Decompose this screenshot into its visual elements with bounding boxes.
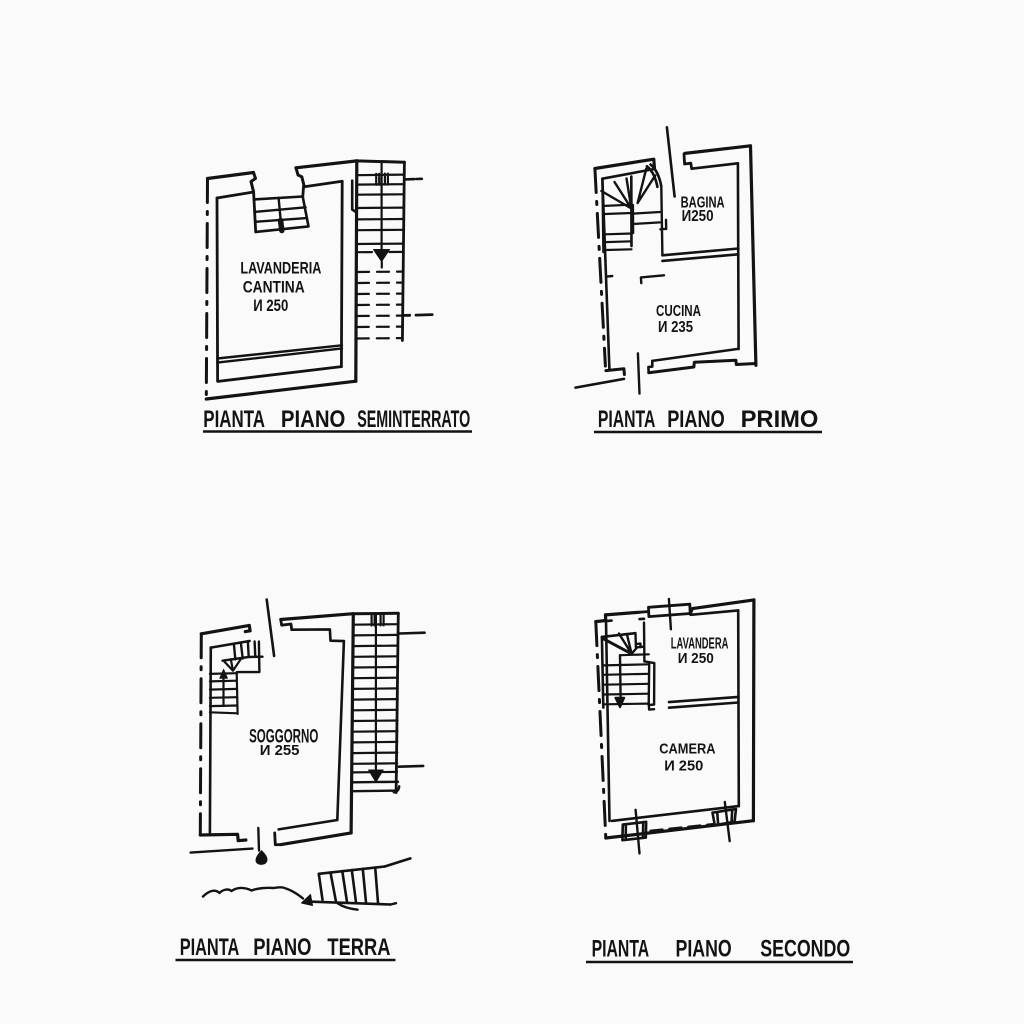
svg-text:PRIMO: PRIMO [741,406,819,433]
svg-text:CUCINA: CUCINA [656,303,701,320]
svg-text:И 250: И 250 [678,650,714,667]
svg-text:PIANO: PIANO [676,936,732,963]
svg-text:PIANTA: PIANTA [180,934,240,961]
svg-text:И 250: И 250 [664,758,703,775]
svg-text:TERRA: TERRA [327,934,390,961]
svg-text:CANTINA: CANTINA [243,278,305,296]
svg-text:И 255: И 255 [260,742,300,759]
svg-text:PIANO: PIANO [281,406,346,433]
svg-text:LAVANDERIA: LAVANDERIA [240,260,321,278]
svg-text:CAMERA: CAMERA [659,740,715,757]
svg-text:PIANTA: PIANTA [203,406,265,433]
svg-text:SEMINTERRATO: SEMINTERRATO [357,406,470,433]
svg-text:PIANTA: PIANTA [598,406,656,433]
svg-text:И 250: И 250 [253,297,288,315]
svg-text:И 235: И 235 [658,319,693,336]
svg-text:PIANTA: PIANTA [592,936,650,963]
svg-text:PIANO: PIANO [253,934,311,961]
svg-text:И250: И250 [682,208,714,225]
svg-text:PIANO: PIANO [667,406,725,433]
svg-text:SECONDO: SECONDO [760,936,850,963]
